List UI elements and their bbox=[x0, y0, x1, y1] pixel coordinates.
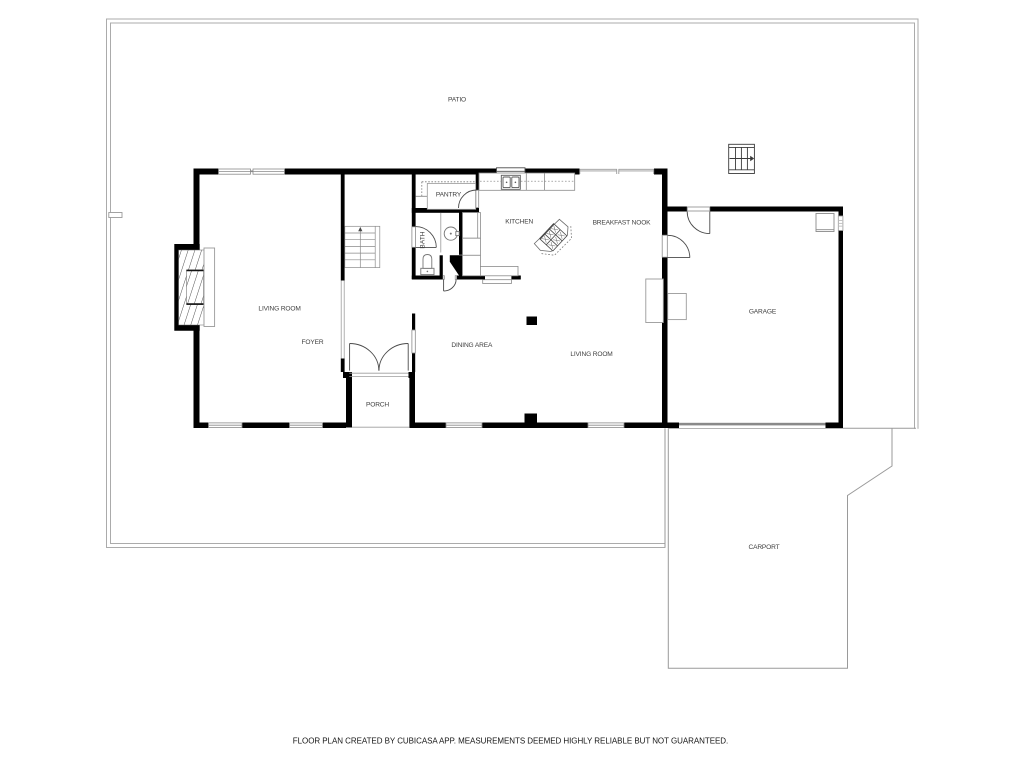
svg-text:FLOOR PLAN CREATED BY CUBICASA: FLOOR PLAN CREATED BY CUBICASA APP. MEAS… bbox=[293, 737, 728, 746]
svg-text:CARPORT: CARPORT bbox=[748, 544, 779, 551]
svg-text:LIVING ROOM: LIVING ROOM bbox=[570, 351, 612, 358]
svg-text:GARAGE: GARAGE bbox=[749, 309, 777, 316]
svg-text:DINING AREA: DINING AREA bbox=[451, 342, 493, 349]
svg-text:PORCH: PORCH bbox=[366, 401, 389, 408]
svg-text:FOYER: FOYER bbox=[302, 339, 324, 346]
svg-text:BATH: BATH bbox=[420, 231, 427, 248]
svg-text:BREAKFAST NOOK: BREAKFAST NOOK bbox=[593, 219, 652, 226]
svg-text:PANTRY: PANTRY bbox=[436, 191, 462, 198]
svg-text:KITCHEN: KITCHEN bbox=[505, 219, 533, 226]
svg-text:PATIO: PATIO bbox=[448, 97, 466, 104]
svg-text:LIVING ROOM: LIVING ROOM bbox=[258, 306, 300, 313]
